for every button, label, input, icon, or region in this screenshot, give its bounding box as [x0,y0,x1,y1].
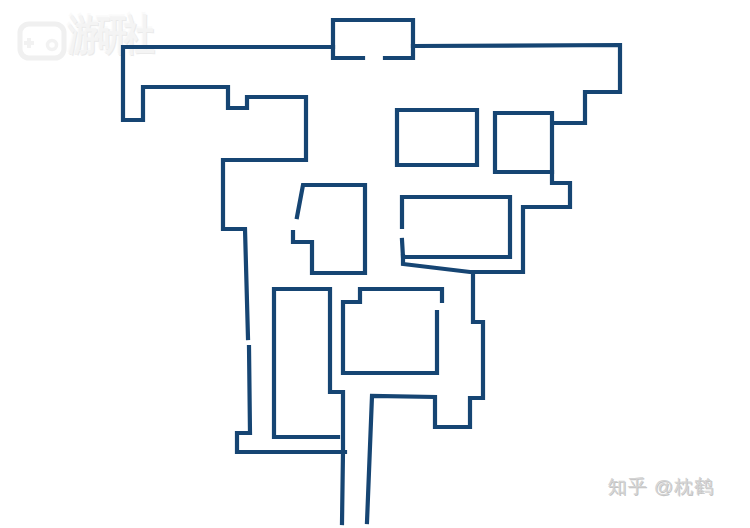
page: 游研社 知乎 @枕鹤 [0,0,750,528]
credit-watermark: 知乎 @枕鹤 [607,474,714,500]
center-room [343,289,442,373]
map-drawing [0,0,750,528]
mid-right-room [402,197,510,257]
tall-left-room-and-corridor-left-wall [274,289,343,523]
upper-mid-small-room [397,110,477,165]
top-center-room [333,20,413,58]
upper-right-small-room [495,113,552,172]
right-lower-boundary-and-corridor-right-wall [367,272,483,522]
notched-left-room [293,185,365,273]
